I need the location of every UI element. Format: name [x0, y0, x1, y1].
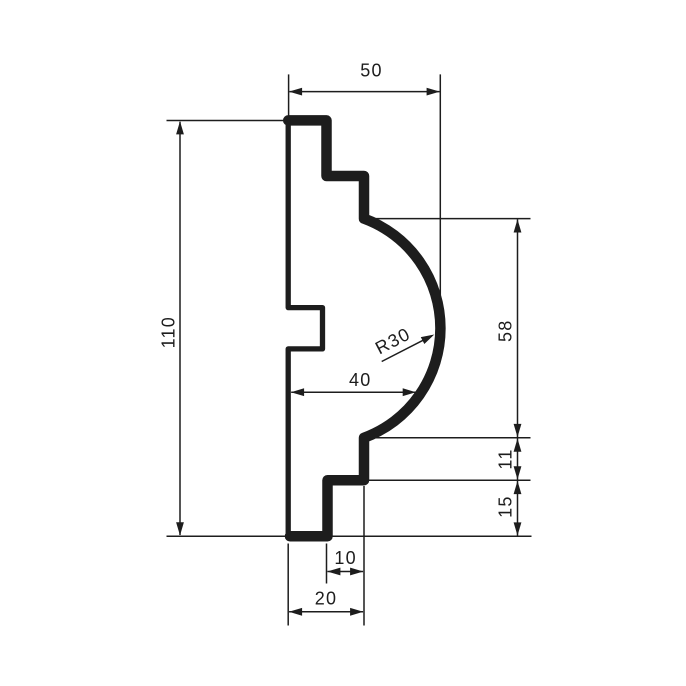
svg-text:50: 50 — [360, 61, 383, 81]
svg-text:11: 11 — [495, 448, 515, 469]
svg-text:110: 110 — [158, 316, 178, 348]
svg-text:10: 10 — [334, 548, 357, 568]
svg-text:R30: R30 — [372, 324, 414, 359]
svg-text:20: 20 — [315, 588, 338, 608]
svg-text:15: 15 — [495, 495, 515, 518]
svg-text:58: 58 — [495, 319, 515, 342]
svg-text:40: 40 — [349, 370, 372, 390]
